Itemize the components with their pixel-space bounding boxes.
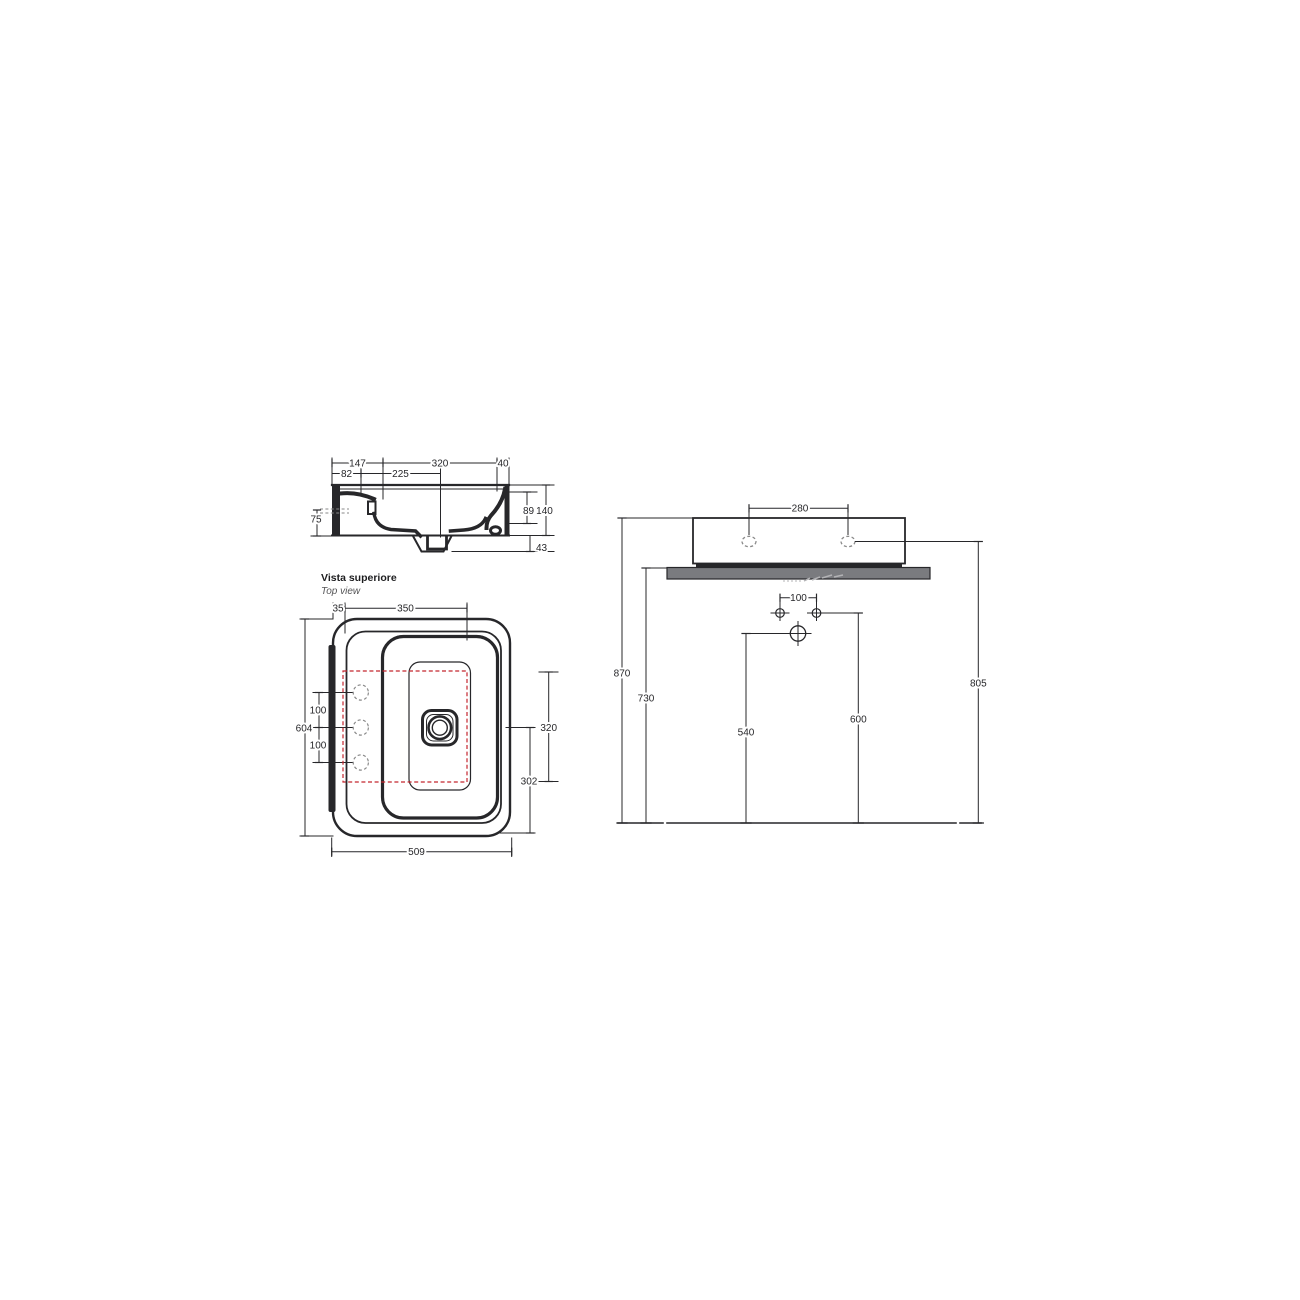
bowl-edge [383,637,498,819]
right-inner-wall [487,489,506,528]
dim-label-43: 43 [536,543,548,554]
counter-slab [667,568,930,580]
dim-label-805: 805 [970,679,987,690]
dim-label-100-front: 100 [790,593,807,604]
dim-label-89: 89 [523,506,535,517]
washbasin-technical-drawing: 147 320 40 82 225 75 89 140 43 Vis [0,0,1300,1300]
basin-floor-left [374,514,421,537]
dim-label-302: 302 [521,777,538,788]
dim-label-730: 730 [638,694,655,705]
view-title-english: Top view [321,586,361,597]
basin-plan [329,619,511,836]
supply-fitting-right [808,606,826,621]
basin-front [693,518,905,564]
dim-label-604: 604 [296,724,313,735]
basin-floor-right [451,519,486,532]
top-view: Vista superiore Top view [296,572,558,858]
drain-plan [423,711,458,746]
dim-label-140: 140 [536,506,553,517]
left-rim-underside [340,493,374,499]
technical-drawing-sheet: 147 320 40 82 225 75 89 140 43 Vis [0,0,1300,1300]
overflow-channel [491,527,501,535]
supply-fitting-left [771,606,789,621]
fixing-hole-right [841,536,855,546]
dim-label-540: 540 [738,728,755,739]
tap-hole-2 [353,720,368,735]
dim-label-100-lower: 100 [310,741,327,752]
basin-cross-section [320,485,510,552]
dim-label-320-section: 320 [432,459,449,470]
dim-label-870: 870 [614,669,631,680]
section-view: 147 320 40 82 225 75 89 140 43 [310,458,554,554]
dim-label-40: 40 [497,459,509,470]
dim-label-280: 280 [792,504,809,515]
drain-stub-inner [428,537,447,550]
fixing-hole-left [742,536,756,546]
dim-label-225: 225 [392,469,409,480]
dim-label-320-top: 320 [540,723,557,734]
dim-label-82: 82 [341,469,353,480]
dim-label-350: 350 [397,604,414,615]
tap-hole-3 [353,755,368,770]
back-edge-strip [329,645,336,812]
dim-label-147: 147 [349,459,366,470]
dim-label-75: 75 [310,515,322,526]
dim-label-600: 600 [850,715,867,726]
front-installation-view: 280 100 870 730 540 600 805 [614,504,987,824]
dim-label-35: 35 [332,604,344,615]
view-title-italian: Vista superiore [321,572,397,584]
dim-label-100-upper: 100 [310,706,327,717]
basin-base-strip [696,563,902,567]
bowl-bottom [409,662,471,790]
tap-hole-1 [353,685,368,700]
dim-label-509: 509 [408,847,425,858]
